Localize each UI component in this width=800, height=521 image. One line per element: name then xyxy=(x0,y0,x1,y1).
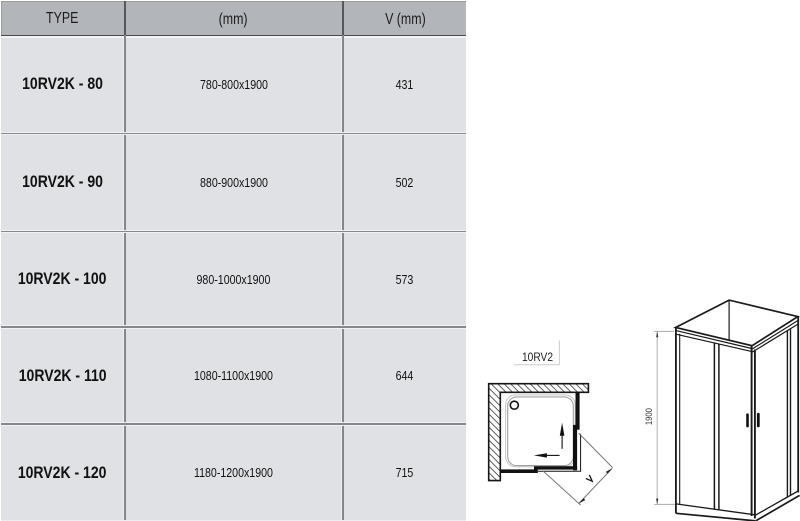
svg-text:10RV2: 10RV2 xyxy=(522,351,553,364)
svg-text:1900: 1900 xyxy=(643,408,654,425)
